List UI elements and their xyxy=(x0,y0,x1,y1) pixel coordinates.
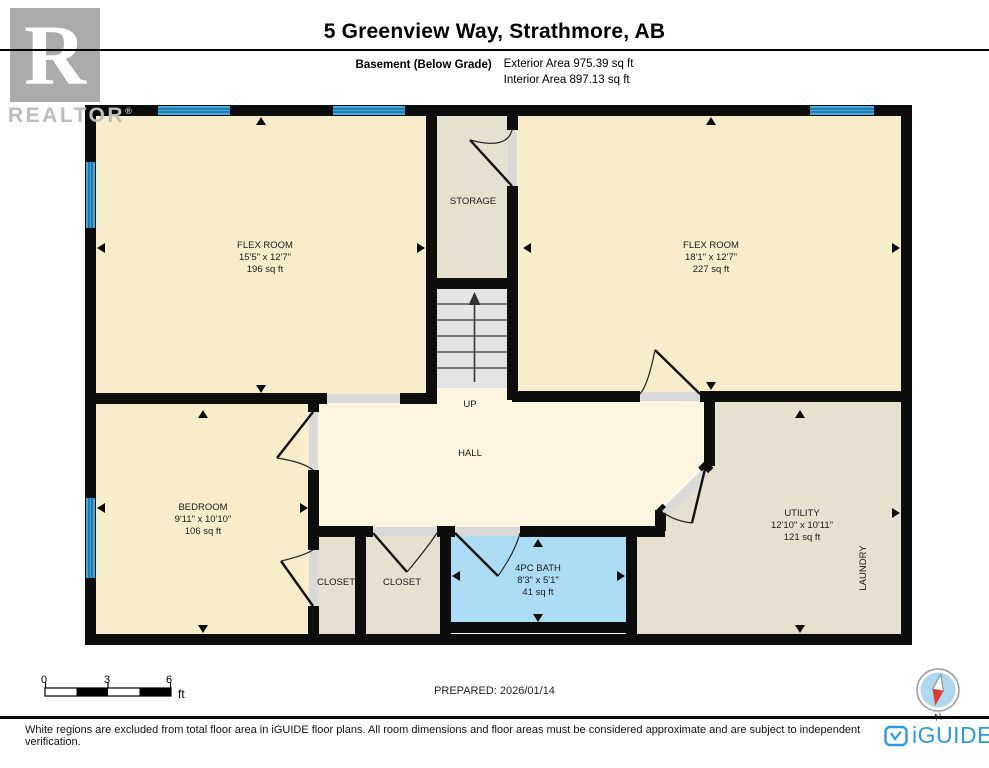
stairs-up-label: UP xyxy=(463,399,476,410)
window-glass xyxy=(86,162,95,228)
realtor-word: REALTOR xyxy=(8,104,125,127)
room-label-dims: 18'1" x 12'7" xyxy=(685,252,737,263)
realtor-logo: R REALTOR® xyxy=(8,8,123,128)
door-jamb xyxy=(455,527,520,536)
window-glass xyxy=(333,106,405,115)
room-label-name: BEDROOM xyxy=(178,502,227,513)
footer-divider xyxy=(0,716,989,719)
room-label-area: 121 sq ft xyxy=(784,532,821,543)
iguide-camera-icon xyxy=(883,723,909,749)
room-label-name: FLEX ROOM xyxy=(683,240,739,251)
window xyxy=(810,106,874,115)
window xyxy=(333,106,405,115)
realtor-r-letter: R xyxy=(24,12,86,98)
realtor-logo-text: REALTOR® xyxy=(8,104,123,128)
staircase xyxy=(437,283,512,388)
room-label-name: HALL xyxy=(458,448,482,459)
room-hall xyxy=(318,398,703,531)
room-label-name: UTILITY xyxy=(784,508,820,519)
iguide-logo-text: iGUIDE xyxy=(912,722,989,749)
floorplan-page: R REALTOR® 5 Greenview Way, Strathmore, … xyxy=(0,0,989,768)
room-label-name: FLEX ROOM xyxy=(237,240,293,251)
disclaimer-text: White regions are excluded from total fl… xyxy=(25,724,865,748)
title-divider xyxy=(0,49,989,51)
realtor-logo-box: R xyxy=(10,8,100,102)
iguide-logo: iGUIDE xyxy=(883,722,989,749)
room-label-name: CLOSET xyxy=(383,577,421,588)
room-label-dims: 15'5" x 12'7" xyxy=(239,252,291,263)
floorplan-svg: FLEX ROOM 15'5" x 12'7" 196 sq ft STORAG… xyxy=(0,0,989,768)
registered-mark: ® xyxy=(125,106,134,116)
window-glass xyxy=(158,106,230,115)
window-glass xyxy=(86,498,95,578)
window xyxy=(158,106,230,115)
door-jamb xyxy=(508,130,517,186)
opening-jamb xyxy=(327,394,400,403)
room-label-area: 41 sq ft xyxy=(522,587,554,598)
door-jamb xyxy=(309,412,318,470)
room-label-name: CLOSET xyxy=(317,577,355,588)
window xyxy=(86,498,95,578)
room-label-name: 4PC BATH xyxy=(515,563,561,574)
room-label-dims: 8'3" x 5'1" xyxy=(517,575,559,586)
door-jamb xyxy=(373,527,437,536)
prepared-date: PREPARED: 2026/01/14 xyxy=(0,685,989,697)
room-label-name: STORAGE xyxy=(450,196,496,207)
window xyxy=(86,162,95,228)
laundry-label: LAUNDRY xyxy=(858,545,869,591)
room-label-area: 227 sq ft xyxy=(693,264,730,275)
door-jamb xyxy=(640,392,700,401)
room-label-dims: 12'10" x 10'11" xyxy=(771,520,833,531)
room-label-area: 106 sq ft xyxy=(185,526,222,537)
window-glass xyxy=(810,106,874,115)
room-label-dims: 9'11" x 10'10" xyxy=(175,514,232,525)
room-label-area: 196 sq ft xyxy=(247,264,284,275)
